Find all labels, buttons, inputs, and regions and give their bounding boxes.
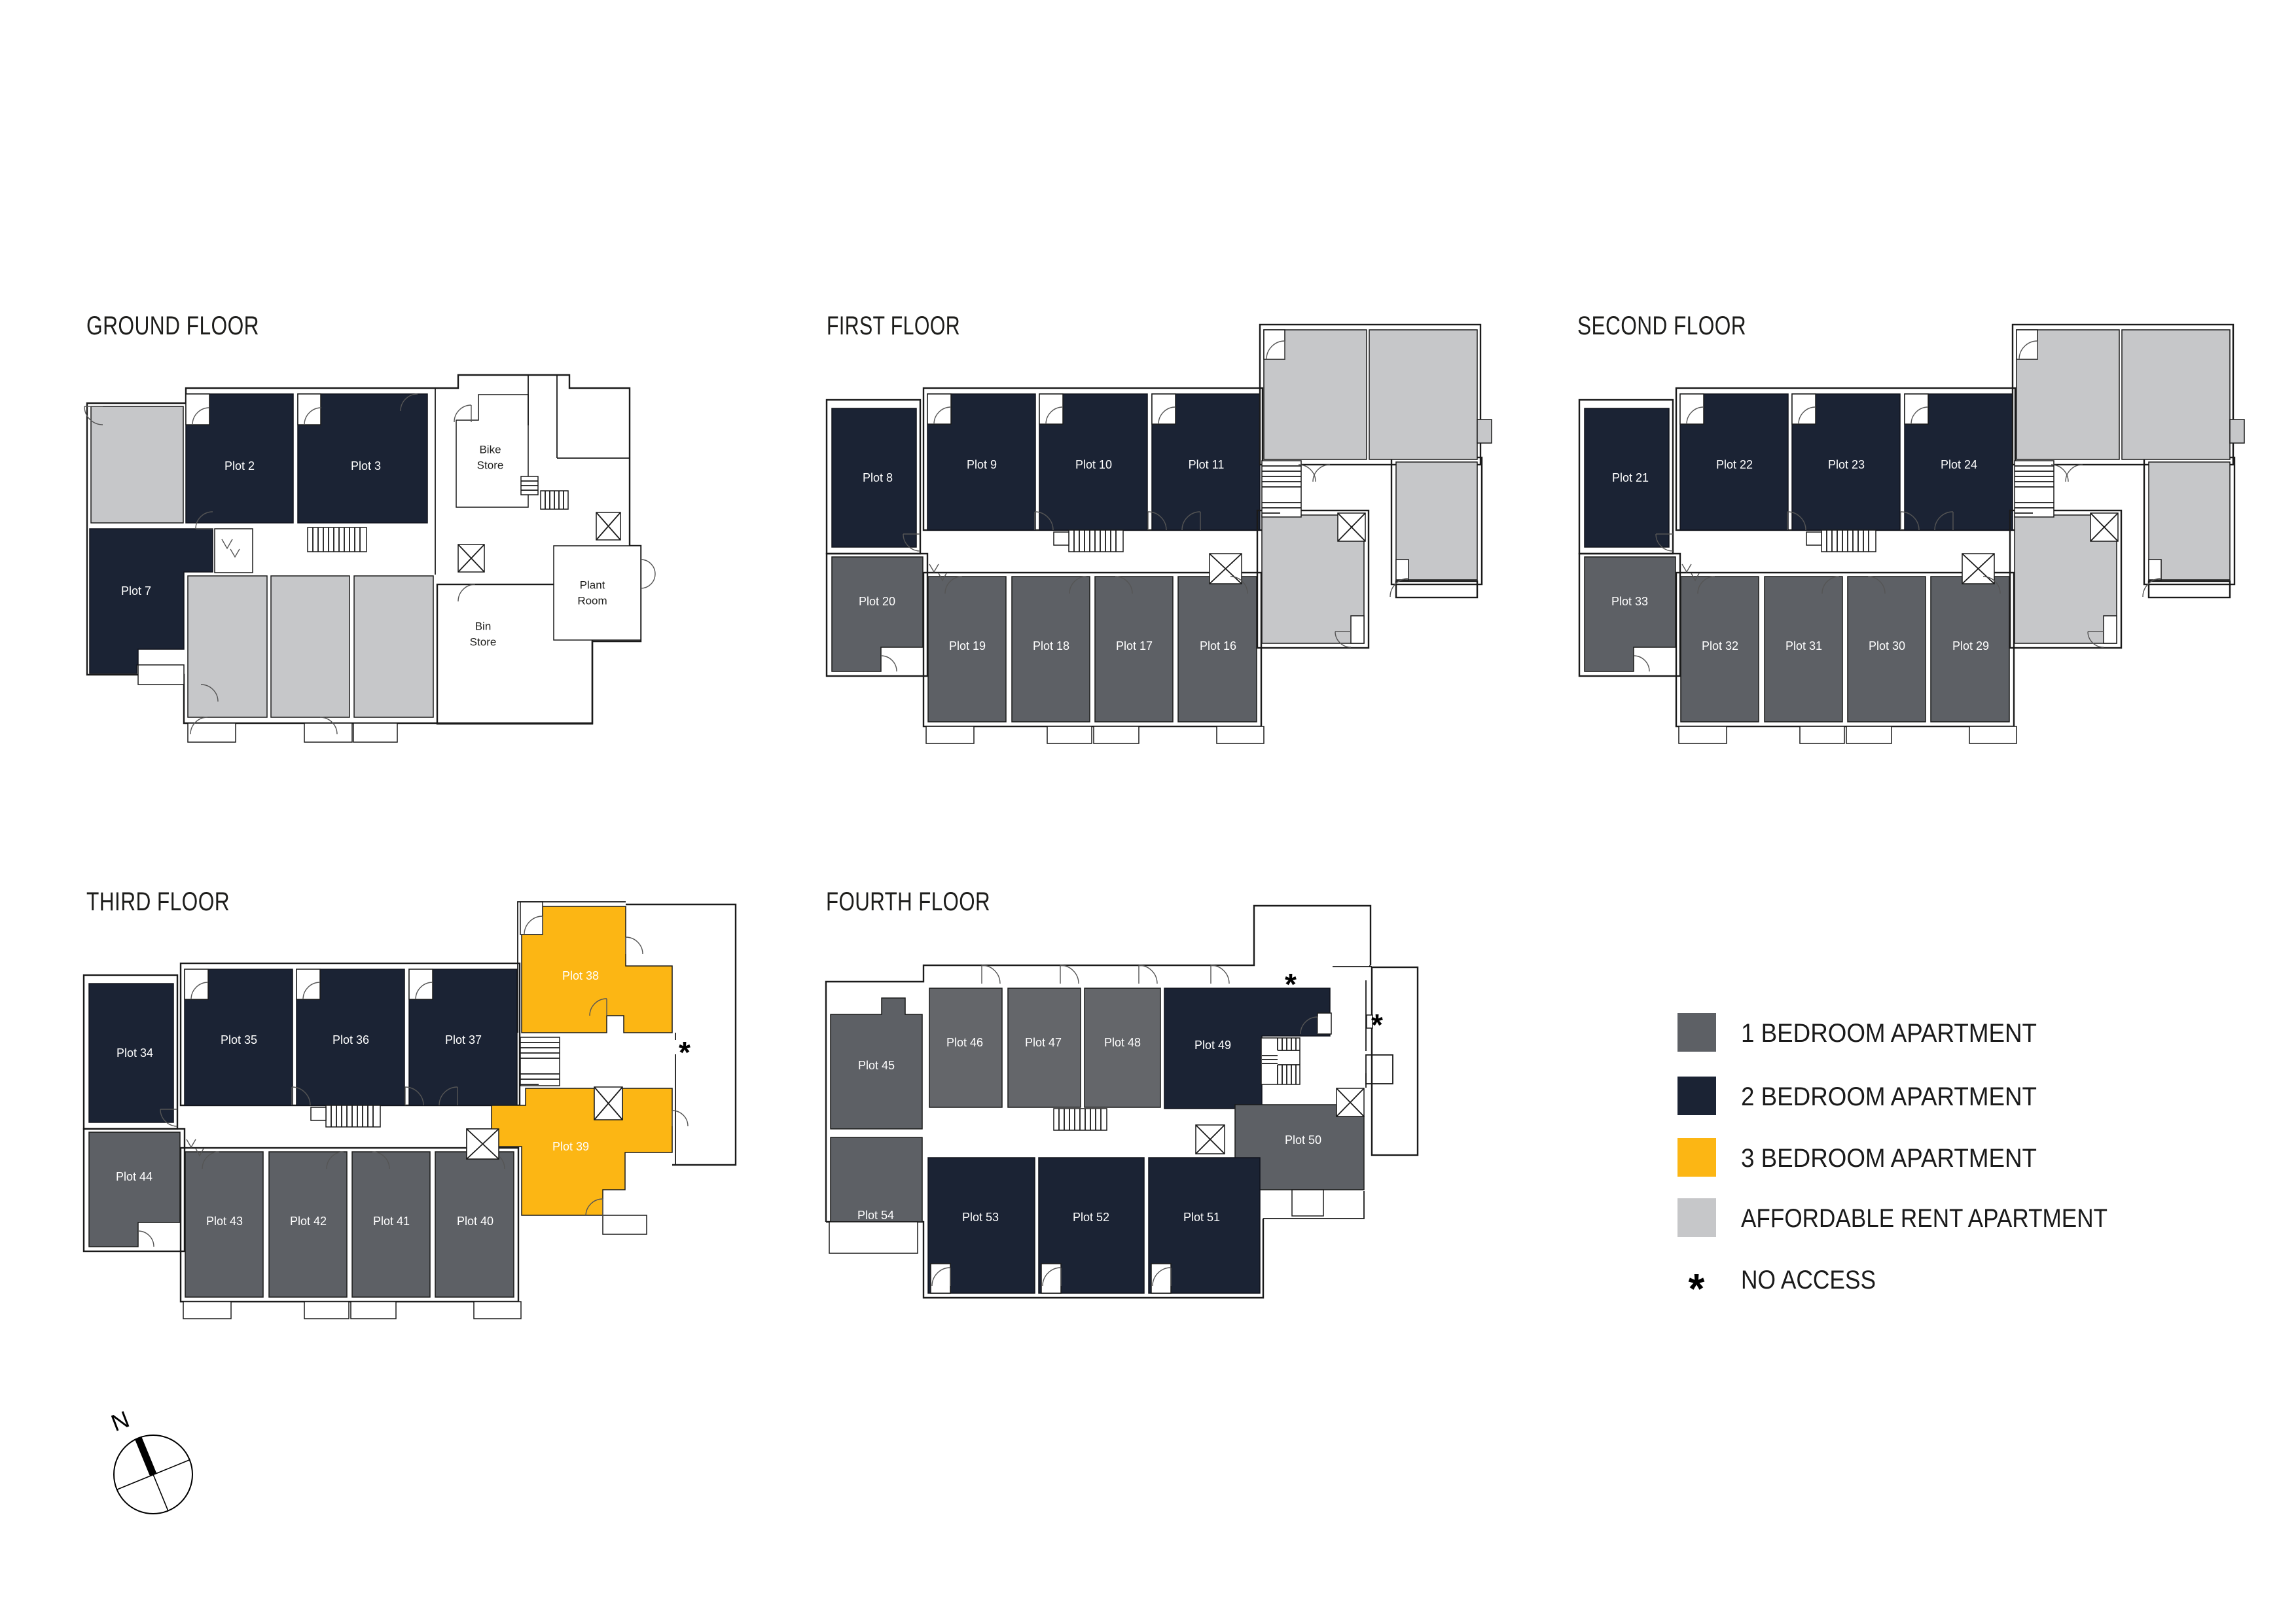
svg-text:Plot 2: Plot 2 xyxy=(224,459,255,473)
svg-text:Plot 51: Plot 51 xyxy=(1183,1211,1220,1224)
svg-text:Plot 48: Plot 48 xyxy=(1104,1036,1141,1049)
svg-text:Plot 42: Plot 42 xyxy=(290,1215,327,1228)
svg-text:Plot 35: Plot 35 xyxy=(221,1033,257,1046)
svg-text:Plot 54: Plot 54 xyxy=(857,1209,894,1222)
svg-text:Plot 3: Plot 3 xyxy=(351,459,381,473)
svg-text:AFFORDABLE RENT APARTMENT: AFFORDABLE RENT APARTMENT xyxy=(1741,1204,2108,1233)
svg-text:Plot 34: Plot 34 xyxy=(117,1046,153,1060)
svg-text:Plot 10: Plot 10 xyxy=(1075,458,1112,471)
svg-text:Plot 30: Plot 30 xyxy=(1869,639,1905,652)
svg-text:Plant: Plant xyxy=(580,579,605,592)
svg-text:Plot 38: Plot 38 xyxy=(562,969,599,982)
svg-text:GROUND FLOOR: GROUND FLOOR xyxy=(86,312,259,340)
svg-text:Plot 20: Plot 20 xyxy=(859,595,895,608)
svg-text:Plot 19: Plot 19 xyxy=(949,639,986,652)
svg-text:Plot 37: Plot 37 xyxy=(445,1033,482,1046)
svg-text:Plot 7: Plot 7 xyxy=(121,584,151,597)
svg-text:Store: Store xyxy=(470,636,497,649)
svg-text:Plot 44: Plot 44 xyxy=(116,1170,152,1183)
svg-text:Plot 33: Plot 33 xyxy=(1611,595,1648,608)
svg-text:Plot 11: Plot 11 xyxy=(1189,458,1225,471)
svg-text:Plot 43: Plot 43 xyxy=(206,1215,243,1228)
svg-text:Plot 46: Plot 46 xyxy=(946,1036,983,1049)
svg-text:Plot 8: Plot 8 xyxy=(863,471,893,484)
svg-text:Plot 50: Plot 50 xyxy=(1285,1133,1321,1147)
svg-text:Plot 18: Plot 18 xyxy=(1033,639,1069,652)
svg-text:Plot 52: Plot 52 xyxy=(1073,1211,1109,1224)
svg-text:Plot 47: Plot 47 xyxy=(1025,1036,1062,1049)
svg-text:Plot 24: Plot 24 xyxy=(1941,458,1977,471)
svg-text:*: * xyxy=(1371,1008,1383,1042)
svg-text:Bike: Bike xyxy=(479,444,501,456)
svg-text:Plot 49: Plot 49 xyxy=(1194,1039,1231,1052)
svg-text:Plot 23: Plot 23 xyxy=(1828,458,1865,471)
svg-text:*: * xyxy=(1689,1265,1705,1312)
svg-text:Plot 17: Plot 17 xyxy=(1116,639,1153,652)
svg-text:Plot 53: Plot 53 xyxy=(962,1211,999,1224)
svg-text:Plot 9: Plot 9 xyxy=(967,458,997,471)
svg-text:Room: Room xyxy=(577,595,607,607)
svg-text:Plot 32: Plot 32 xyxy=(1702,639,1738,652)
svg-text:Plot 22: Plot 22 xyxy=(1716,458,1753,471)
svg-text:1 BEDROOM APARTMENT: 1 BEDROOM APARTMENT xyxy=(1741,1019,2037,1048)
svg-text:Plot 36: Plot 36 xyxy=(332,1033,369,1046)
svg-text:Plot 40: Plot 40 xyxy=(457,1215,493,1228)
svg-text:FOURTH FLOOR: FOURTH FLOOR xyxy=(826,887,990,916)
svg-text:THIRD FLOOR: THIRD FLOOR xyxy=(86,887,230,916)
svg-text:FIRST FLOOR: FIRST FLOOR xyxy=(827,312,960,340)
svg-text:Plot 45: Plot 45 xyxy=(858,1059,895,1072)
svg-text:Plot 21: Plot 21 xyxy=(1612,471,1649,484)
svg-text:Plot 31: Plot 31 xyxy=(1785,639,1822,652)
svg-text:Plot 41: Plot 41 xyxy=(373,1215,410,1228)
svg-text:*: * xyxy=(1285,967,1297,1001)
svg-text:Bin: Bin xyxy=(475,620,492,633)
svg-text:Plot 16: Plot 16 xyxy=(1200,639,1236,652)
svg-text:NO ACCESS: NO ACCESS xyxy=(1741,1266,1876,1294)
svg-text:Plot 39: Plot 39 xyxy=(552,1140,589,1153)
svg-text:*: * xyxy=(679,1035,691,1069)
svg-text:SECOND FLOOR: SECOND FLOOR xyxy=(1577,312,1746,340)
svg-text:Plot 29: Plot 29 xyxy=(1952,639,1989,652)
svg-text:Store: Store xyxy=(477,459,504,472)
svg-text:3 BEDROOM APARTMENT: 3 BEDROOM APARTMENT xyxy=(1741,1144,2037,1173)
svg-text:2 BEDROOM APARTMENT: 2 BEDROOM APARTMENT xyxy=(1741,1082,2037,1111)
